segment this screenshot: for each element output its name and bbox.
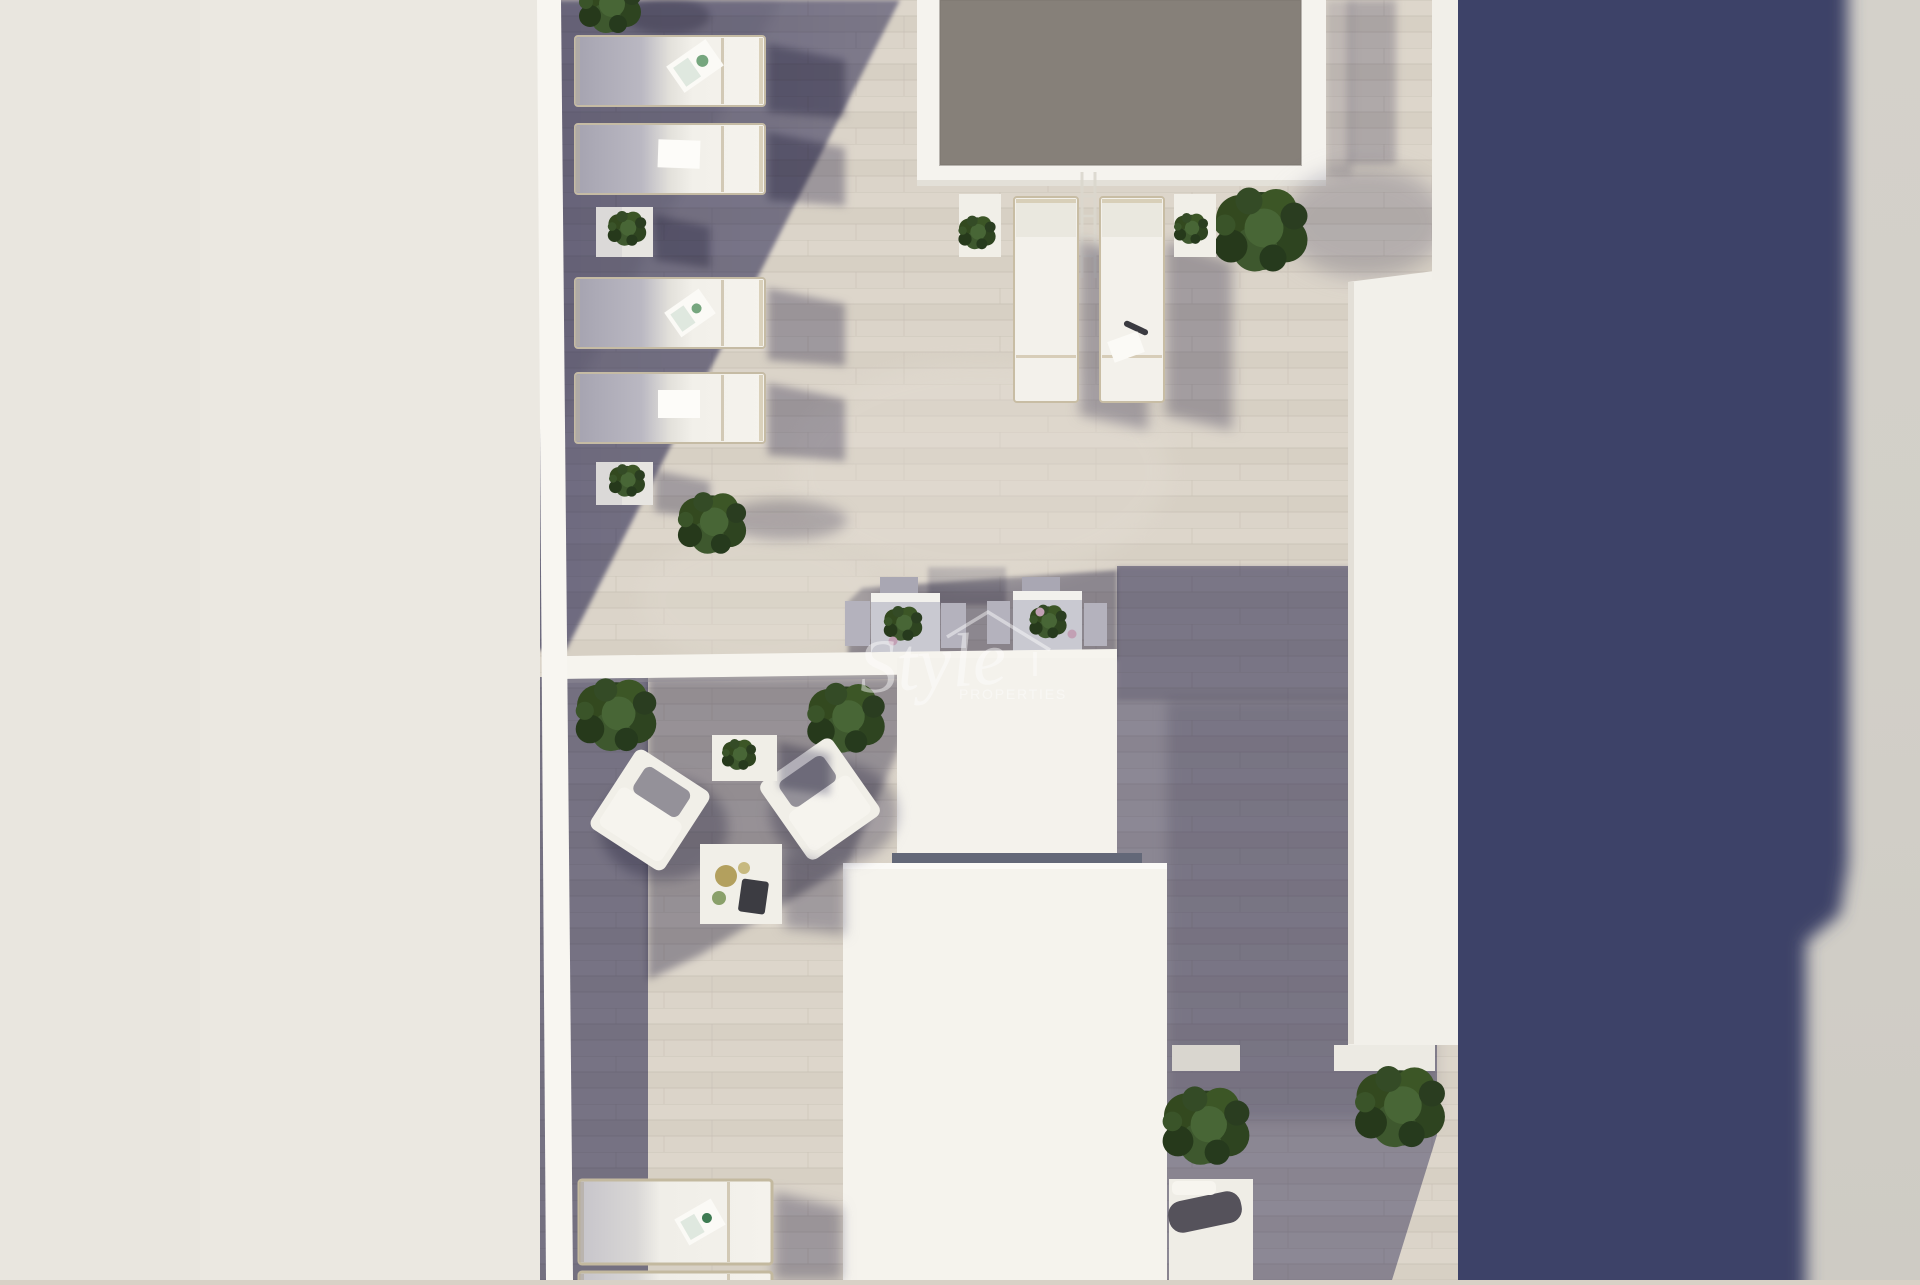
svg-text:PROPERTIES: PROPERTIES [959, 686, 1067, 702]
